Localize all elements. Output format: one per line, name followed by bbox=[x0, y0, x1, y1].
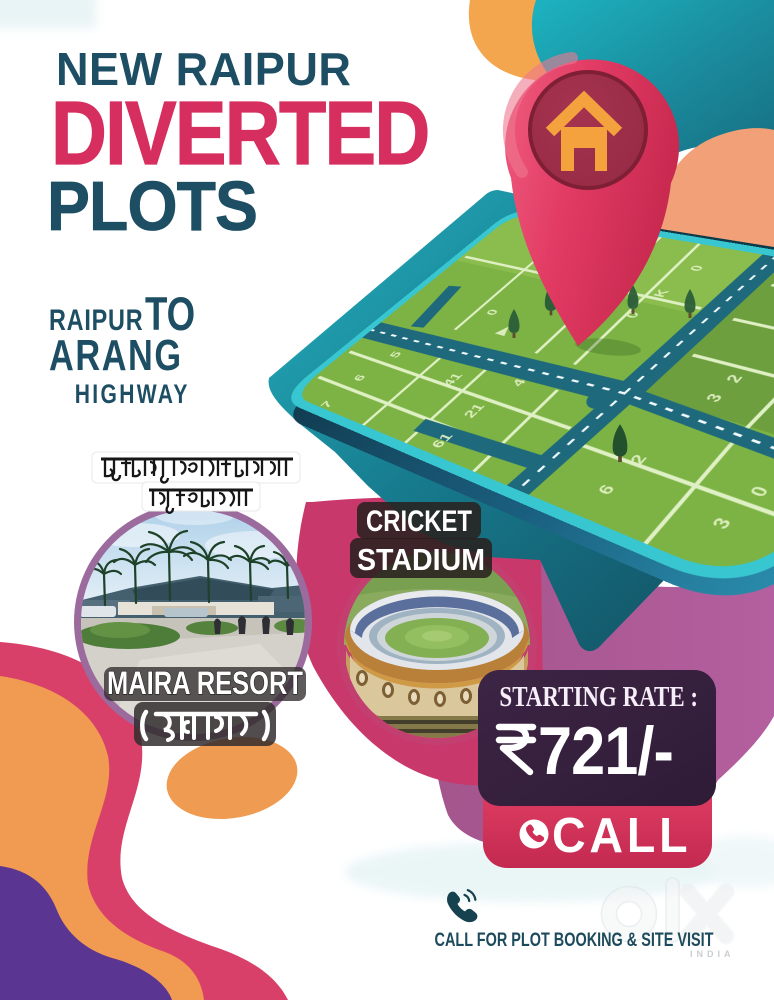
svg-text:CRICKET: CRICKET bbox=[366, 505, 472, 538]
svg-text:STADIUM: STADIUM bbox=[357, 542, 485, 577]
svg-text:MAIRA RESORT: MAIRA RESORT bbox=[107, 665, 303, 701]
